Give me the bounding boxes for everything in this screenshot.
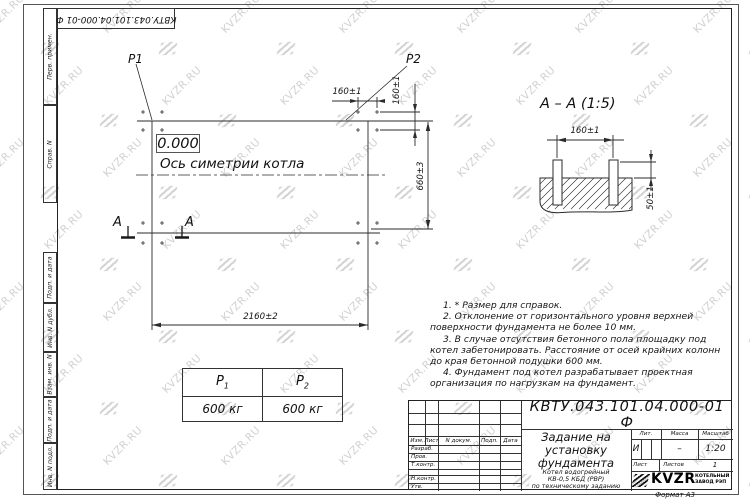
section-letter-right: А [185, 215, 194, 230]
doc-title: Задание на установку фундамента [521, 431, 631, 470]
symmetry-axis-label: Ось симетрии котла [160, 156, 304, 172]
load-point-p1-label: P1 [128, 52, 143, 66]
tb-listov-label: Листов [661, 459, 701, 471]
tb-row-nkontr: Н.контр. [409, 475, 438, 483]
note-3: 3. В случае отсутствия бетонного пола пл… [430, 334, 730, 368]
tb-massa-header: Масса [661, 429, 698, 439]
kvzr-logo-wordmark: KVZR [651, 471, 696, 487]
kvzr-logo-caption-line: КОТЕЛЬНЫЙ [695, 474, 729, 480]
tb-line [500, 401, 501, 491]
tb-row-razrab: Разраб. [409, 445, 438, 453]
tb-line [438, 401, 439, 491]
tb-col-ndokum: N докум. [438, 436, 479, 445]
load-table-header-row: P1 P2 [183, 369, 343, 397]
doc-number: КВТУ.043.101.04.000-01 Ф [521, 401, 733, 429]
tb-line [479, 401, 480, 491]
tb-row-tkontr: Т.контр. [409, 461, 438, 469]
anchor-bolt-marks [141, 110, 379, 245]
load-table-value-p2: 600 кг [263, 397, 343, 422]
dim-bolt-spacing-horizontal: 160±1 [326, 87, 368, 97]
anchor-bolts [553, 160, 618, 205]
section-view-title: А – А (1:5) [540, 96, 616, 112]
format-label: Формат А3 [625, 491, 725, 499]
tb-list-label: Лист [631, 459, 659, 471]
kvzr-logo-caption: КОТЕЛЬНЫЙ ЗАВОД РЭП [695, 474, 729, 485]
kvzr-logo-caption-line: ЗАВОД РЭП [695, 480, 729, 486]
load-table-value-row: 600 кг 600 кг [183, 397, 343, 422]
tb-row-prov: Пров. [409, 453, 438, 461]
level-mark: 0.000 [156, 134, 200, 153]
level-mark-value: 0.000 [157, 136, 199, 152]
tb-line [651, 439, 652, 459]
tb-col-list: Лист [425, 436, 438, 445]
tb-masshtab-header: Масштаб [698, 429, 733, 439]
section-letter-left: А [113, 215, 122, 230]
tb-masshtab-value: 1:20 [698, 439, 733, 459]
dim-bolt-protrusion: 50±1 [646, 181, 656, 215]
load-point-p2-label: P2 [406, 52, 421, 66]
dim-section-bolt-spacing: 160±1 [563, 126, 607, 136]
tb-lit-header: Лит. [631, 429, 661, 439]
note-1: 1. * Размер для справок. [430, 300, 730, 311]
load-table-header-p1: P1 [183, 369, 263, 397]
dimension-lines [152, 84, 433, 325]
tb-col-podp: Подп. [479, 436, 500, 445]
load-table: P1 P2 600 кг 600 кг [182, 368, 343, 422]
tb-row-utv: Утв. [409, 483, 438, 491]
technical-notes: 1. * Размер для справок. 2. Отклонение о… [430, 300, 730, 390]
tb-line [659, 459, 660, 471]
tb-line [641, 439, 642, 459]
note-4: 4. Фундамент под котел разрабатывает про… [430, 367, 730, 389]
section-dimension-lines [547, 135, 656, 191]
section-view-geometry [540, 135, 656, 213]
doc-subtitle: Котел водогрейный КВ-0,5 КБД (РВР) по те… [521, 469, 631, 491]
dim-foundation-height: 660±3 [416, 156, 426, 196]
section-cut-marks [121, 226, 189, 238]
note-2: 2. Отклонение от горизонтального уровня … [430, 311, 730, 333]
title-block: Изм. Лист N докум. Подп. Дата Разраб. Пр… [408, 400, 732, 490]
drawing-sheet: KVZR.RUKVZR.RUKVZR.RUKVZR.RUKVZR.RUKVZR.… [0, 0, 750, 500]
tb-col-izm: Изм. [409, 436, 425, 445]
tb-lit-value: И [631, 439, 641, 459]
load-table-header-p2: P2 [263, 369, 343, 397]
tb-massa-value: – [661, 439, 698, 459]
dim-foundation-width: 2160±2 [228, 312, 293, 322]
load-table-value-p1: 600 кг [183, 397, 263, 422]
dim-bolt-spacing-vertical: 160±1 [392, 70, 402, 110]
kvzr-logo-icon [631, 474, 650, 487]
doc-subtitle-line: по техническому заданию [521, 483, 631, 490]
tb-listov-value: 1 [705, 459, 725, 471]
tb-col-data: Дата [500, 436, 521, 445]
